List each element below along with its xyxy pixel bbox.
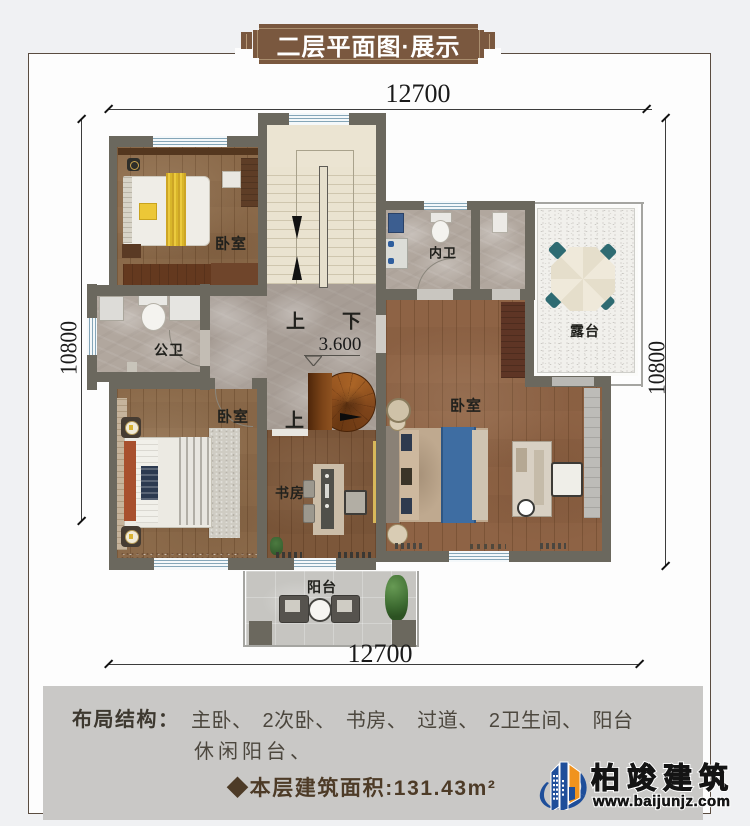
svg-text:柏竣建筑: 柏竣建筑 [591, 761, 735, 795]
svg-text:www.baijunjz.com: www.baijunjz.com [592, 793, 730, 810]
